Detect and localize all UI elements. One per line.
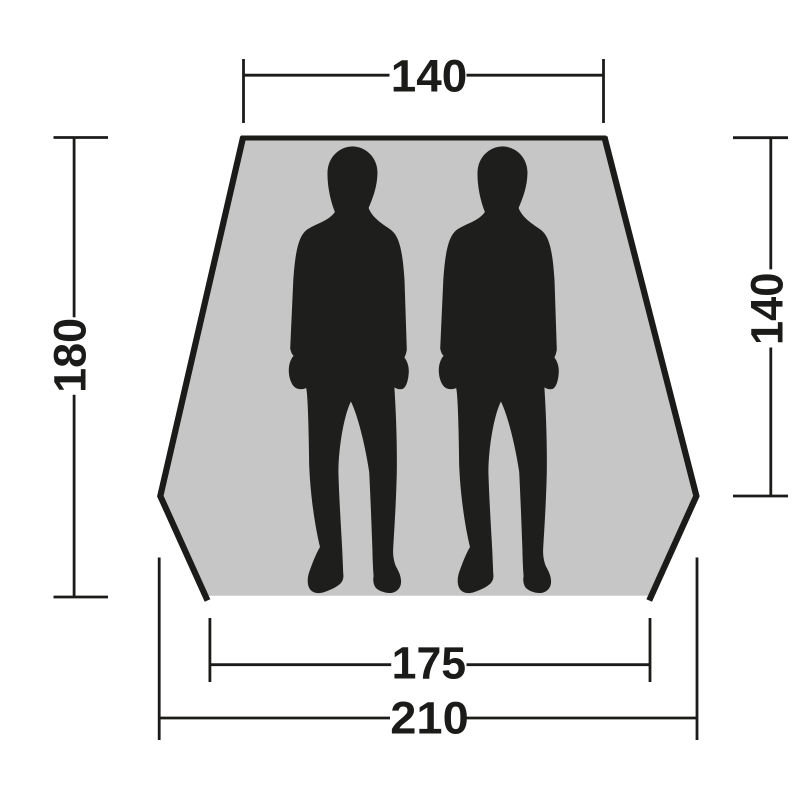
svg-text:175: 175 [392,638,467,689]
svg-text:180: 180 [45,318,96,393]
svg-text:140: 140 [391,51,468,102]
svg-text:210: 210 [390,693,469,744]
svg-text:140: 140 [742,273,793,345]
